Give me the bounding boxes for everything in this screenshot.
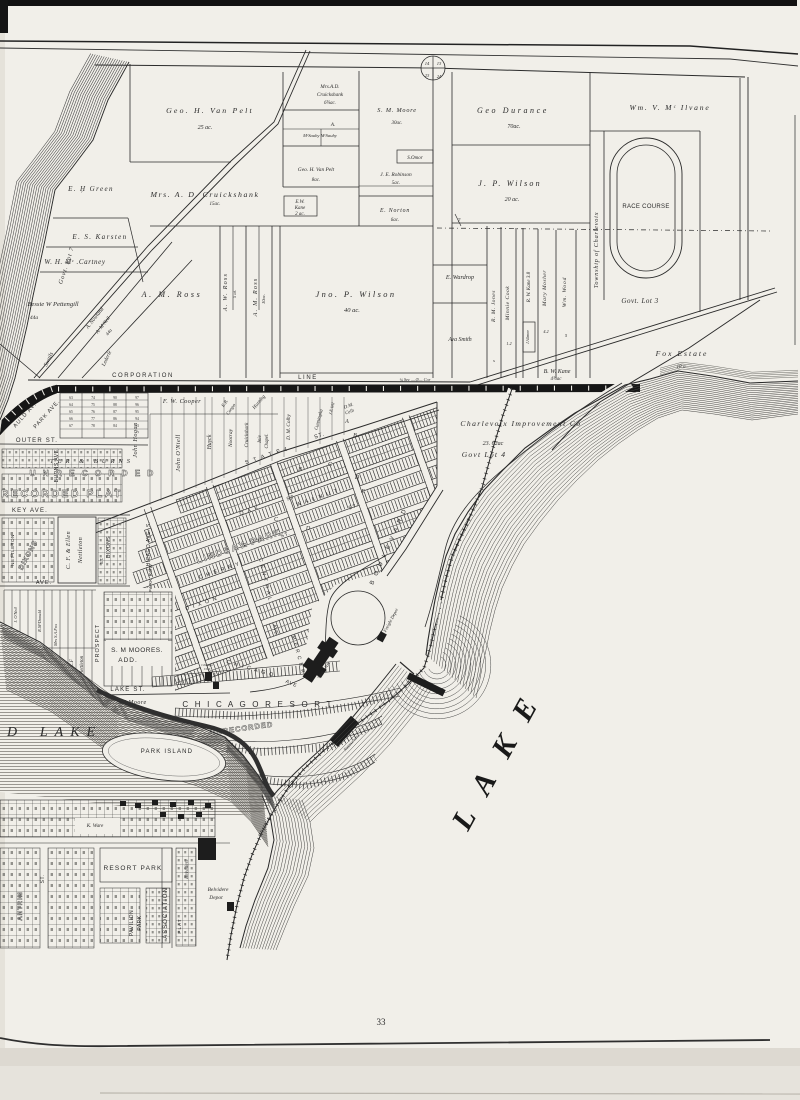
svg-text:Geo. H. Van Pelt: Geo. H. Van Pelt xyxy=(166,106,254,115)
svg-text:AVE.: AVE. xyxy=(36,580,52,586)
svg-text:s: s xyxy=(493,358,495,363)
svg-text:44a: 44a xyxy=(30,314,39,321)
svg-text:A. M. Ross: A. M. Ross xyxy=(252,278,259,318)
svg-text:66: 66 xyxy=(69,417,73,421)
svg-text:Jno. P. Wilson: Jno. P. Wilson xyxy=(316,290,397,299)
svg-text:Minnie Cook: Minnie Cook xyxy=(505,286,511,322)
svg-text:S.Omor: S.Omor xyxy=(407,156,422,161)
svg-text:Bessie W Pettengill: Bessie W Pettengill xyxy=(27,301,78,308)
svg-text:10ac.: 10ac. xyxy=(261,294,266,304)
svg-text:97: 97 xyxy=(135,396,139,400)
svg-text:Huyck: Huyck xyxy=(207,434,213,450)
svg-text:Govt Lot 4: Govt Lot 4 xyxy=(462,450,507,459)
svg-text:PARK ROW: PARK ROW xyxy=(148,564,153,593)
svg-text:B. W. Kane: B. W. Kane xyxy=(544,369,571,375)
svg-text:Fox Estate: Fox Estate xyxy=(655,349,709,358)
svg-text:J. O'Neil: J. O'Neil xyxy=(13,606,18,622)
svg-text:RACE COURSE: RACE COURSE xyxy=(622,204,669,210)
svg-text:LAKE: LAKE xyxy=(39,725,102,740)
svg-text:1.2: 1.2 xyxy=(506,341,511,346)
svg-text:25 ac.: 25 ac. xyxy=(198,125,213,131)
svg-text:Wm. Wood: Wm. Wood xyxy=(562,277,568,307)
svg-text:84: 84 xyxy=(113,424,117,428)
svg-text:64: 64 xyxy=(69,403,73,407)
svg-text:ST.: ST. xyxy=(40,875,46,884)
svg-text:33: 33 xyxy=(377,1017,387,1027)
svg-text:ADD.: ADD. xyxy=(118,657,138,664)
svg-text:67: 67 xyxy=(69,424,73,428)
svg-text:D. M. Colby: D. M. Colby xyxy=(286,413,292,440)
svg-text:Club: Club xyxy=(204,667,211,671)
svg-text:K. Ware: K. Ware xyxy=(86,823,104,829)
svg-text:7: 7 xyxy=(458,218,461,224)
svg-text:Chapel.: Chapel. xyxy=(265,433,270,448)
svg-text:Geo Durance: Geo Durance xyxy=(477,106,549,115)
svg-text:Nettleton: Nettleton xyxy=(78,537,84,565)
svg-text:2 ac.: 2 ac. xyxy=(295,212,305,217)
svg-text:UNRECORDED: UNRECORDED xyxy=(30,468,161,478)
svg-text:MᶜSauby MᶜSauby: MᶜSauby MᶜSauby xyxy=(302,133,338,138)
svg-text:15ac.: 15ac. xyxy=(210,202,221,207)
svg-text:PAVILION: PAVILION xyxy=(129,910,135,936)
svg-text:90: 90 xyxy=(113,396,117,400)
svg-text:A: A xyxy=(282,447,287,453)
svg-text:Mrs. A. D. Cruickshank: Mrs. A. D. Cruickshank xyxy=(149,190,259,199)
svg-text:78: 78 xyxy=(91,424,95,428)
svg-text:PLAT: PLAT xyxy=(177,918,182,933)
svg-text:¼ Sec —⊙— Cor: ¼ Sec —⊙— Cor xyxy=(400,377,431,382)
svg-text:Wm. V. Mᶜ Ilvane: Wm. V. Mᶜ Ilvane xyxy=(629,103,710,112)
svg-text:94: 94 xyxy=(135,417,139,421)
svg-text:J. P. Wilson: J. P. Wilson xyxy=(478,179,542,188)
svg-text:D: D xyxy=(354,475,360,481)
svg-text:Mrs S.A.Fox: Mrs S.A.Fox xyxy=(53,624,58,647)
svg-text:Depot: Depot xyxy=(208,895,223,901)
svg-text:LINE: LINE xyxy=(298,375,318,381)
svg-text:ASSOCIATION: ASSOCIATION xyxy=(163,887,169,939)
svg-text:63: 63 xyxy=(69,396,73,400)
svg-text:E. S. Karsten: E. S. Karsten xyxy=(71,233,127,241)
svg-text:Geo. H. Van Pelt: Geo. H. Van Pelt xyxy=(298,167,335,173)
svg-text:E. H̗ Green: E. H̗ Green xyxy=(67,185,114,193)
svg-text:13: 13 xyxy=(437,61,442,66)
svg-text:Cruickshark: Cruickshark xyxy=(245,422,250,448)
svg-text:77: 77 xyxy=(91,417,95,421)
svg-text:Nootray: Nootray xyxy=(228,428,234,448)
svg-text:TER & BURNS: TER & BURNS xyxy=(50,458,134,465)
svg-text:87: 87 xyxy=(113,410,117,414)
svg-text:6¾ac.: 6¾ac. xyxy=(324,101,336,106)
svg-text:A: A xyxy=(344,419,349,425)
svg-text:86: 86 xyxy=(113,417,117,421)
svg-text:F. W. Cooper: F. W. Cooper xyxy=(162,398,201,405)
svg-text:24: 24 xyxy=(437,74,442,79)
svg-text:Belvidere: Belvidere xyxy=(184,858,190,878)
svg-text:LAKE ST.: LAKE ST. xyxy=(110,687,145,693)
svg-text:DIXONS: DIXONS xyxy=(106,536,112,558)
svg-text:ST.: ST. xyxy=(99,558,104,565)
svg-text:Township of Charlevoix: Township of Charlevoix xyxy=(593,212,600,289)
svg-text:23. 62ac: 23. 62ac xyxy=(483,441,504,447)
svg-text:Govt. Lot 3: Govt. Lot 3 xyxy=(621,297,658,305)
svg-text:E. Norton: E. Norton xyxy=(379,208,410,214)
svg-text:A.: A. xyxy=(330,123,335,128)
svg-text:Mrs.A.D.: Mrs.A.D. xyxy=(319,84,339,90)
svg-text:E.W.: E.W. xyxy=(294,200,304,205)
svg-text:Inie: Inie xyxy=(258,434,263,443)
svg-text:A. M. Ross: A. M. Ross xyxy=(141,290,203,299)
svg-text:CHICAGO AVE. S.: CHICAGO AVE. S. xyxy=(146,521,152,570)
svg-text:Mary Mosher: Mary Mosher xyxy=(542,270,548,307)
svg-text:75: 75 xyxy=(91,403,95,407)
svg-text:E: E xyxy=(360,489,365,495)
svg-text:20 ac.: 20 ac. xyxy=(505,197,520,203)
svg-text:R. M. Jones: R. M. Jones xyxy=(491,290,497,323)
svg-text:CORPORATION: CORPORATION xyxy=(112,373,174,379)
svg-text:74: 74 xyxy=(91,396,95,400)
svg-text:PARK: PARK xyxy=(137,915,143,930)
svg-text:S. M MOORES.: S. M MOORES. xyxy=(111,647,163,654)
svg-text:96: 96 xyxy=(135,403,139,407)
svg-text:30ac.: 30ac. xyxy=(392,121,403,126)
svg-text:RESORT PARK: RESORT PARK xyxy=(103,865,162,872)
svg-text:23: 23 xyxy=(425,73,430,78)
svg-text:8ac.: 8ac. xyxy=(312,178,320,183)
svg-text:Cruickshank: Cruickshank xyxy=(317,92,344,98)
svg-text:J. E. Robinson: J. E. Robinson xyxy=(380,172,412,178)
svg-text:Kane: Kane xyxy=(294,206,306,211)
svg-text:70ac.: 70ac. xyxy=(507,124,520,130)
svg-text:D: D xyxy=(6,725,17,740)
svg-text:65: 65 xyxy=(69,410,73,414)
svg-text:76: 76 xyxy=(91,410,95,414)
svg-text:PROSPECT: PROSPECT xyxy=(95,624,101,662)
svg-text:14: 14 xyxy=(425,61,430,66)
svg-text:NETTLETON: NETTLETON xyxy=(10,534,15,566)
svg-text:B: B xyxy=(298,467,302,473)
svg-text:RECORDED PLAT: RECORDED PLAT xyxy=(1,488,123,500)
svg-text:Belvidere: Belvidere xyxy=(208,887,229,893)
svg-text:PARK ISLAND: PARK ISLAND xyxy=(141,749,193,755)
svg-text:6ac.: 6ac. xyxy=(391,218,399,223)
svg-text:OUTER ST.: OUTER ST. xyxy=(16,438,58,444)
svg-text:John Hogan: John Hogan xyxy=(132,422,139,457)
svg-text:88: 88 xyxy=(113,403,117,407)
svg-text:W. H. Mᶜ .Cartney: W. H. Mᶜ .Cartney xyxy=(44,258,105,266)
svg-text:Charlevoix Improvement Co: Charlevoix Improvement Co xyxy=(460,419,581,428)
svg-text:40 ac.: 40 ac. xyxy=(344,307,360,314)
svg-text:Ava Smith: Ava Smith xyxy=(447,337,471,343)
svg-text:D: D xyxy=(305,526,311,532)
svg-text:4¾ac: 4¾ac xyxy=(551,377,563,382)
svg-text:4.2: 4.2 xyxy=(543,329,548,334)
svg-text:John O'Niell: John O'Niell xyxy=(175,434,182,471)
svg-text:R.MᶜDonald: R.MᶜDonald xyxy=(37,609,42,633)
svg-text:A. W. Ross: A. W. Ross xyxy=(222,273,229,312)
svg-text:E. Wardrop: E. Wardrop xyxy=(445,274,474,281)
svg-text:C H I C A G O R E S O R T: C H I C A G O R E S O R T xyxy=(182,700,333,709)
svg-text:5ac.: 5ac. xyxy=(392,181,400,186)
svg-text:KEY AVE.: KEY AVE. xyxy=(12,508,48,514)
svg-text:B: B xyxy=(353,433,357,439)
svg-text:ANTRIM: ANTRIM xyxy=(18,891,24,920)
svg-text:C. F. & Ellen: C. F. & Ellen xyxy=(66,531,72,569)
svg-text:R. W. Kane 3.8: R. W. Kane 3.8 xyxy=(526,271,532,303)
svg-text:J.Allmore: J.Allmore xyxy=(526,330,530,344)
svg-text:5 at.: 5 at. xyxy=(232,290,237,298)
svg-text:S. M. Moore: S. M. Moore xyxy=(377,107,417,114)
svg-text:95: 95 xyxy=(135,410,139,414)
